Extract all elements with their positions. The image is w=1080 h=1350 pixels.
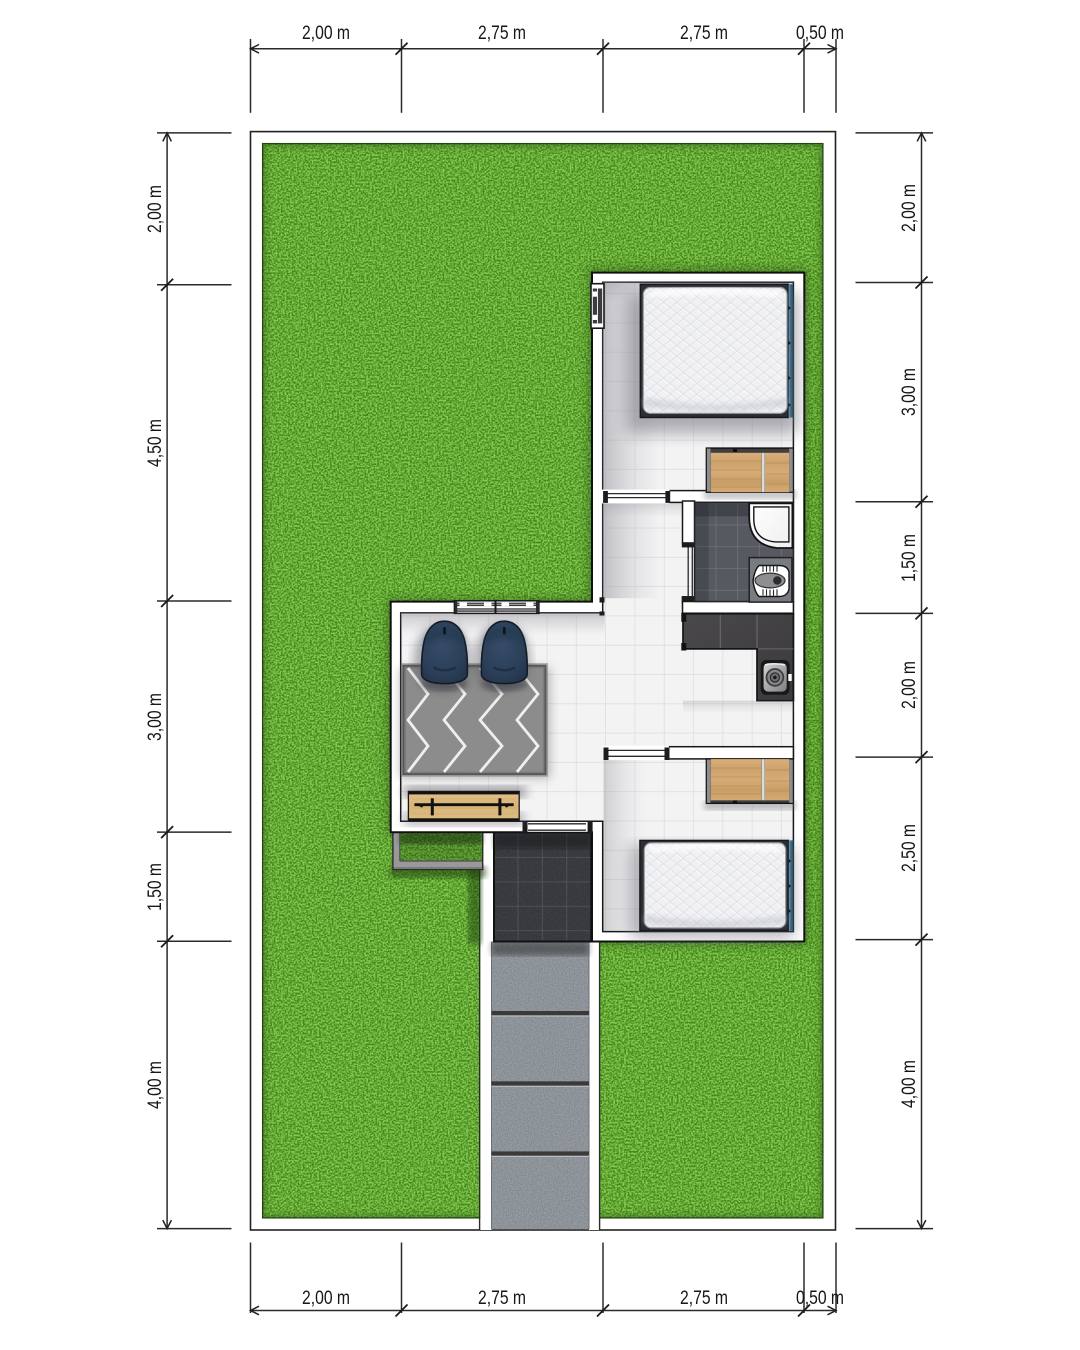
svg-text:2,75 m: 2,75 m	[680, 23, 728, 44]
svg-text:2,75 m: 2,75 m	[478, 1288, 526, 1309]
svg-text:2,75 m: 2,75 m	[680, 1288, 728, 1309]
svg-text:3,00 m: 3,00 m	[145, 693, 166, 741]
svg-text:0,50 m: 0,50 m	[796, 23, 844, 44]
svg-text:0,50 m: 0,50 m	[796, 1288, 844, 1309]
svg-text:2,75 m: 2,75 m	[478, 23, 526, 44]
svg-text:4,50 m: 4,50 m	[145, 419, 166, 467]
svg-text:3,00 m: 3,00 m	[899, 368, 920, 416]
svg-text:2,00 m: 2,00 m	[302, 1288, 350, 1309]
svg-text:4,00 m: 4,00 m	[899, 1060, 920, 1108]
svg-text:1,50 m: 1,50 m	[899, 534, 920, 582]
svg-text:2,00 m: 2,00 m	[899, 661, 920, 709]
svg-text:2,00 m: 2,00 m	[899, 184, 920, 232]
svg-text:2,50 m: 2,50 m	[899, 824, 920, 872]
svg-text:2,00 m: 2,00 m	[145, 185, 166, 233]
svg-text:4,00 m: 4,00 m	[145, 1061, 166, 1109]
svg-text:2,00 m: 2,00 m	[302, 23, 350, 44]
svg-text:1,50 m: 1,50 m	[145, 863, 166, 911]
